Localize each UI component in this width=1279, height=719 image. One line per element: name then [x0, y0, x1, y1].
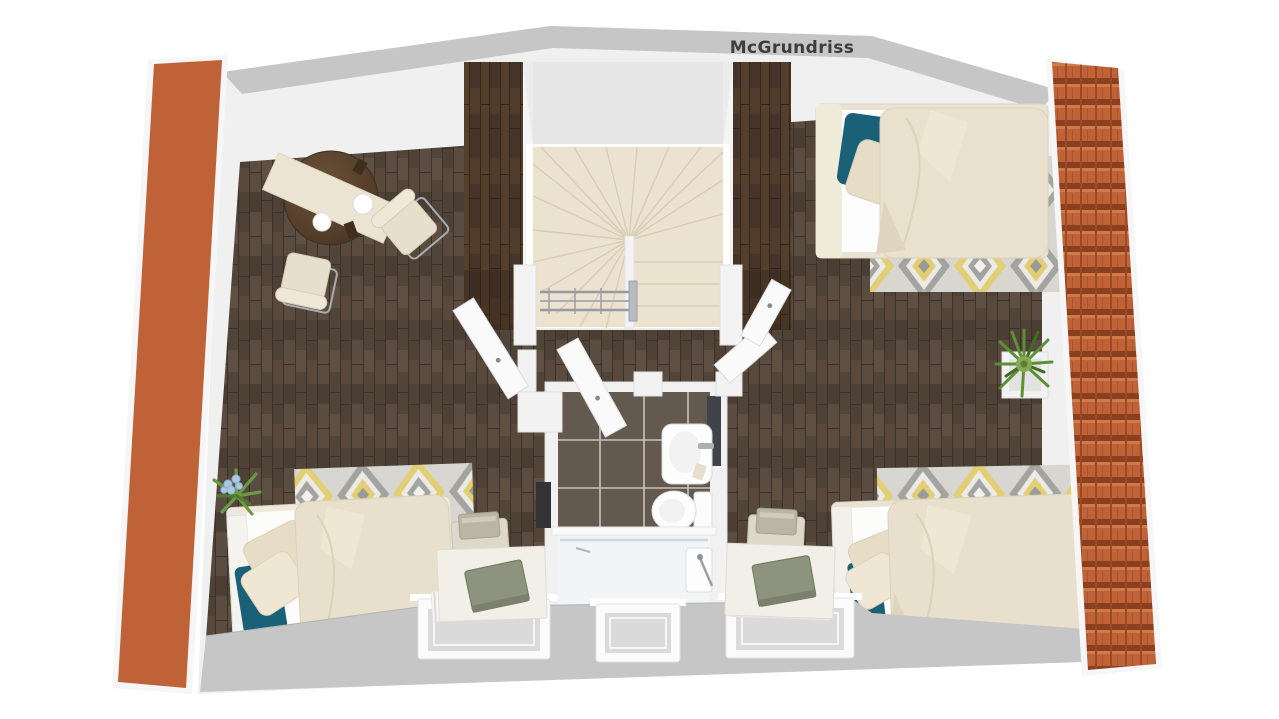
bathroom — [545, 382, 727, 614]
hall-wall-left-b — [518, 392, 562, 432]
window-center — [590, 599, 686, 662]
stair-wall-stub-right — [720, 265, 742, 345]
bathroom-sink — [662, 424, 714, 484]
watermark: McGrundriss — [730, 38, 855, 58]
plate — [353, 194, 373, 214]
floor-plan: McGrundriss — [0, 0, 1279, 719]
hall-wall-center — [634, 372, 662, 396]
plate — [313, 213, 331, 231]
stair-newel-post — [629, 281, 637, 321]
bathroom-toilet — [652, 491, 712, 532]
sink-faucet — [698, 443, 714, 449]
duvet — [876, 108, 1048, 258]
wall-mounted-panel — [536, 482, 551, 528]
shower-glass-rail — [552, 527, 716, 535]
floor-plan-render: McGrundriss — [0, 0, 1279, 719]
stairwell — [464, 62, 791, 345]
bathroom-shower — [552, 527, 716, 608]
bed-top-right — [816, 104, 1048, 258]
stairwell-landing-wall — [533, 62, 723, 147]
stair-wall-stub-left — [514, 265, 536, 345]
bed-headboard — [816, 104, 842, 258]
